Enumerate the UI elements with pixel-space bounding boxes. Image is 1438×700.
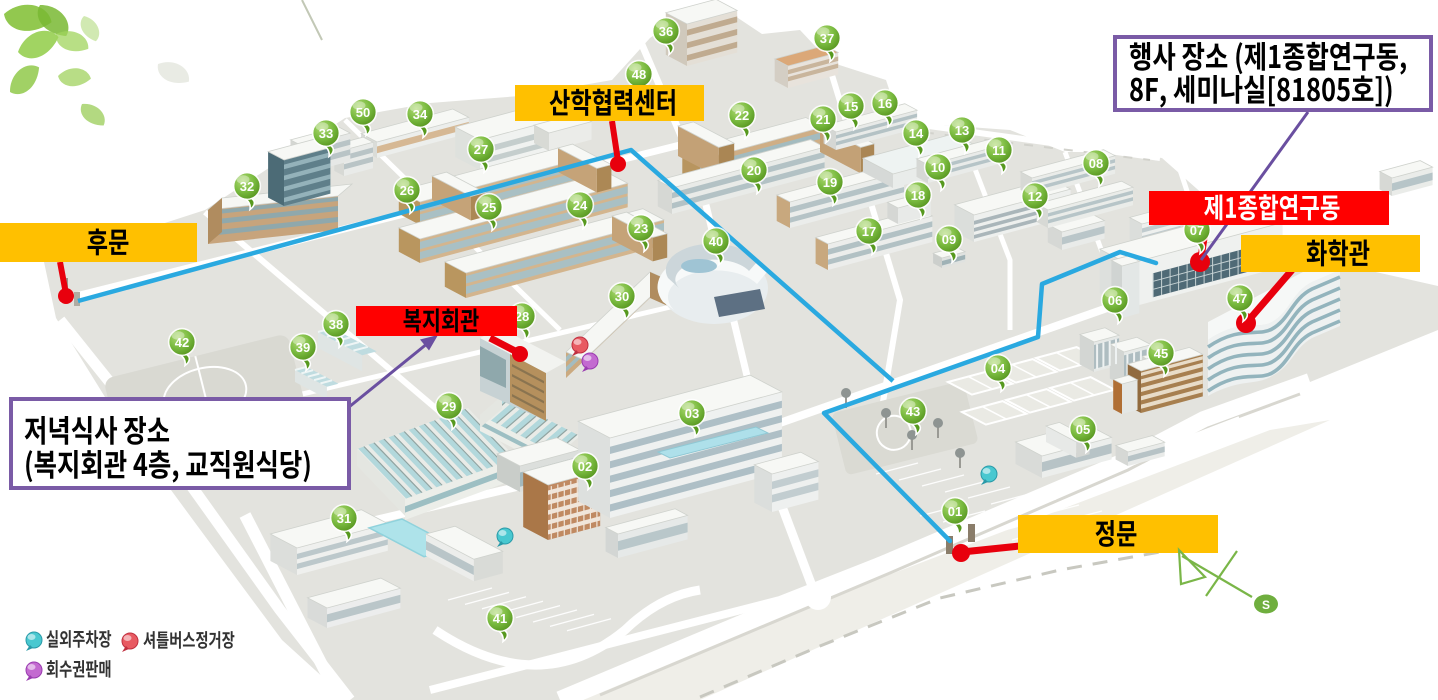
svg-text:25: 25 xyxy=(482,200,496,215)
svg-text:04: 04 xyxy=(991,361,1006,376)
svg-text:13: 13 xyxy=(955,123,969,138)
svg-text:41: 41 xyxy=(493,611,507,626)
svg-text:20: 20 xyxy=(747,163,761,178)
svg-text:19: 19 xyxy=(823,175,837,190)
svg-text:15: 15 xyxy=(844,99,858,114)
svg-text:14: 14 xyxy=(909,126,924,141)
svg-text:34: 34 xyxy=(413,107,428,122)
svg-text:38: 38 xyxy=(329,317,343,332)
svg-text:10: 10 xyxy=(931,160,945,175)
svg-text:39: 39 xyxy=(296,340,310,355)
svg-text:11: 11 xyxy=(992,143,1006,158)
svg-text:36: 36 xyxy=(659,24,673,39)
svg-text:02: 02 xyxy=(578,459,592,474)
svg-text:09: 09 xyxy=(942,232,956,247)
svg-text:07: 07 xyxy=(1190,223,1204,238)
svg-text:17: 17 xyxy=(862,224,876,239)
svg-text:03: 03 xyxy=(685,406,699,421)
svg-text:18: 18 xyxy=(911,188,925,203)
svg-text:30: 30 xyxy=(615,289,629,304)
svg-text:S: S xyxy=(1262,598,1270,612)
svg-text:43: 43 xyxy=(906,404,920,419)
svg-text:21: 21 xyxy=(816,112,830,127)
svg-text:24: 24 xyxy=(573,198,588,213)
svg-text:01: 01 xyxy=(948,504,962,519)
svg-text:12: 12 xyxy=(1028,189,1042,204)
svg-text:50: 50 xyxy=(356,105,370,120)
svg-text:33: 33 xyxy=(319,126,333,141)
svg-text:08: 08 xyxy=(1089,156,1103,171)
svg-text:26: 26 xyxy=(400,183,414,198)
svg-text:27: 27 xyxy=(474,142,488,157)
svg-text:37: 37 xyxy=(820,31,834,46)
svg-text:22: 22 xyxy=(735,108,749,123)
svg-text:29: 29 xyxy=(442,399,456,414)
svg-text:06: 06 xyxy=(1108,293,1122,308)
svg-text:23: 23 xyxy=(634,221,648,236)
svg-text:31: 31 xyxy=(337,511,351,526)
svg-text:32: 32 xyxy=(240,179,254,194)
svg-text:42: 42 xyxy=(175,335,189,350)
svg-text:05: 05 xyxy=(1076,422,1090,437)
svg-text:48: 48 xyxy=(632,67,646,82)
svg-text:40: 40 xyxy=(709,234,723,249)
svg-text:16: 16 xyxy=(878,96,892,111)
svg-text:47: 47 xyxy=(1233,291,1247,306)
svg-text:45: 45 xyxy=(1154,346,1168,361)
